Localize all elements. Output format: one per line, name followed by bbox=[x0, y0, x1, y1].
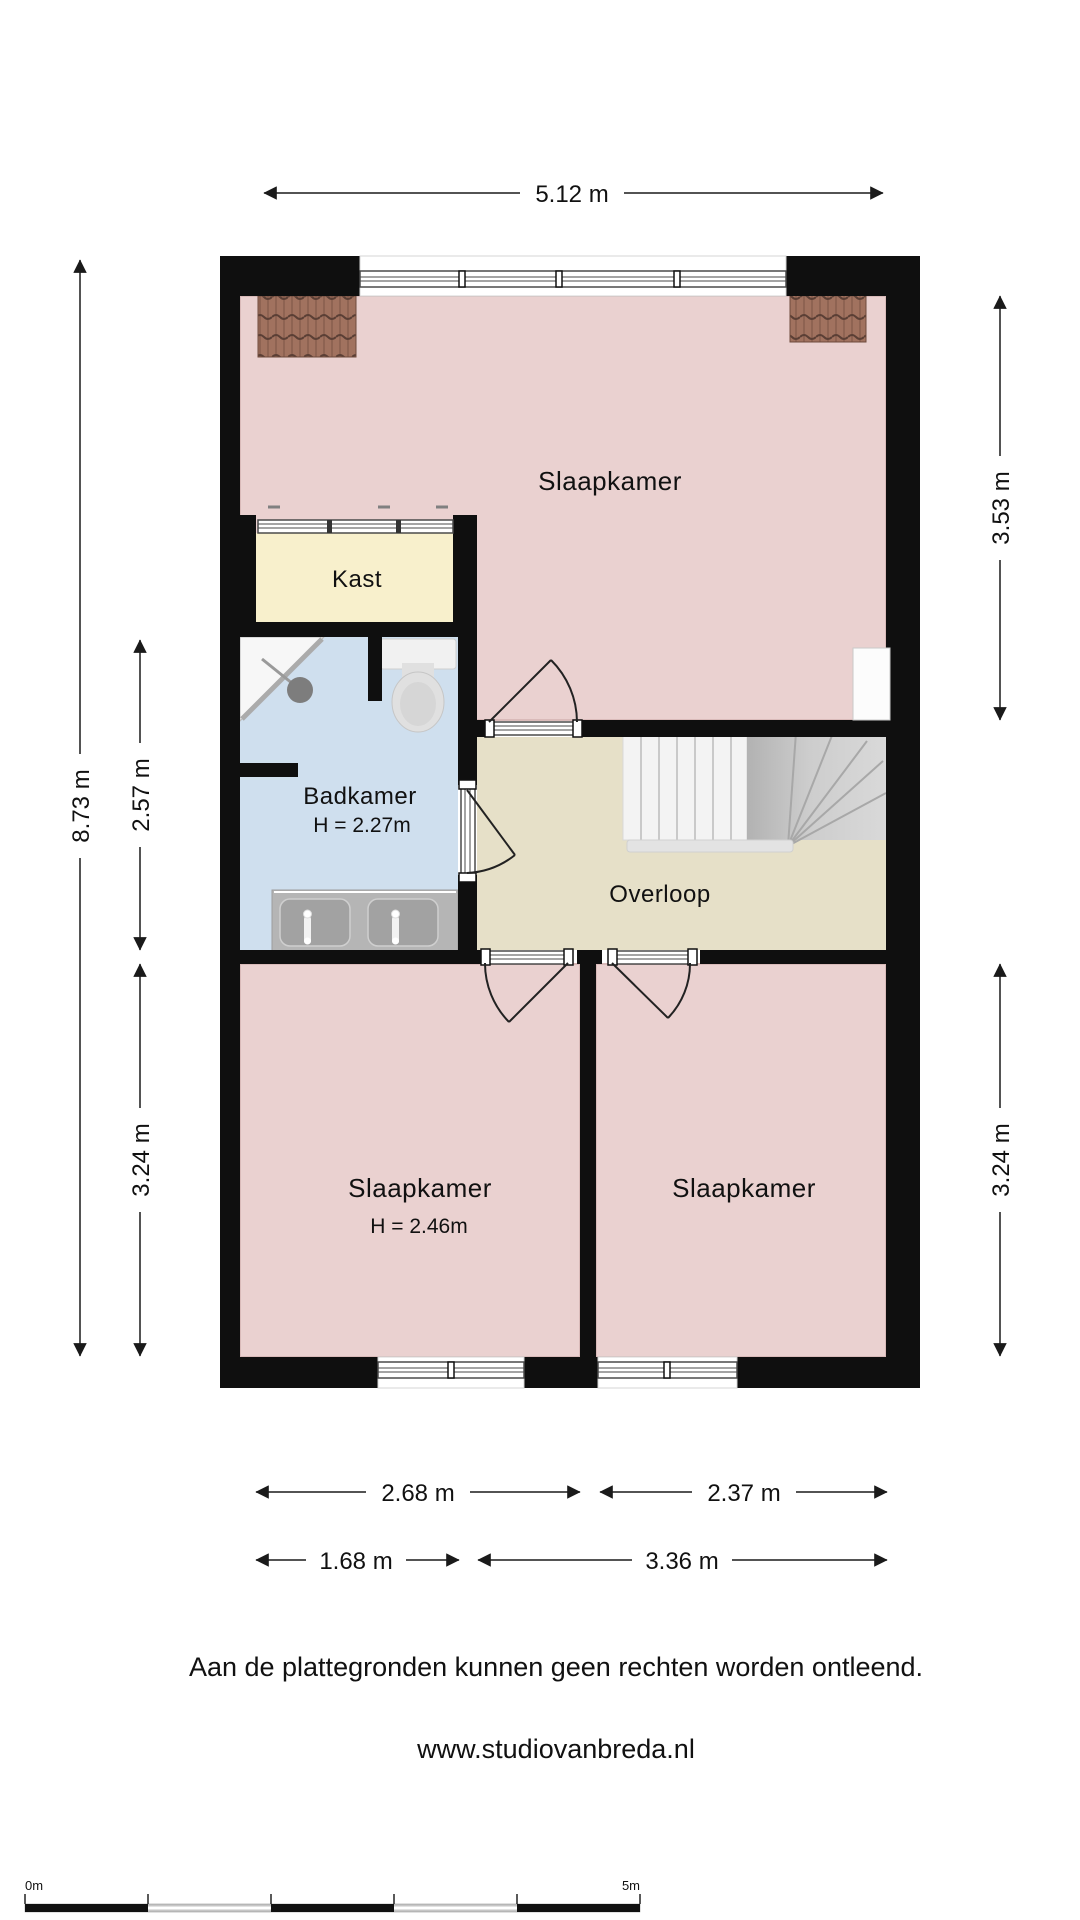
disclaimer-text: Aan de plattegronden kunnen geen rechten… bbox=[189, 1652, 923, 1682]
faucet-left-base bbox=[304, 938, 311, 945]
wall-below-closet bbox=[240, 622, 477, 637]
scale-start-label: 0m bbox=[25, 1878, 43, 1893]
faucet-right-base bbox=[392, 938, 399, 945]
dim-label: 3.53 m bbox=[988, 471, 1015, 544]
window-bottom-left-mullion bbox=[448, 1362, 454, 1378]
wall-bathroom-right-upper bbox=[458, 637, 477, 785]
wall-top-right-corner bbox=[786, 256, 920, 296]
scale-bar-segment-black bbox=[271, 1904, 394, 1912]
wall-left bbox=[220, 256, 240, 1388]
door-bedroom-top-band bbox=[489, 722, 577, 735]
room-bedroom-bottom-right bbox=[596, 964, 886, 1357]
window-top-mullion-1 bbox=[459, 271, 465, 287]
window-top-mullion-3 bbox=[674, 271, 680, 287]
wall-landing-bottom-1 bbox=[240, 950, 485, 964]
wall-bottom-2 bbox=[524, 1357, 598, 1388]
roof-tiles-left bbox=[258, 296, 356, 357]
door-post bbox=[485, 720, 494, 737]
website-text: www.studiovanbreda.nl bbox=[416, 1734, 695, 1764]
stairs bbox=[623, 732, 886, 852]
faucet-left-dot bbox=[304, 910, 312, 918]
window-closet bbox=[258, 520, 453, 533]
dim-label: 5.12 m bbox=[535, 181, 608, 208]
label-closet: Kast bbox=[332, 566, 382, 593]
window-top-mullion-2 bbox=[556, 271, 562, 287]
door-bbl-band bbox=[485, 951, 568, 964]
wall-bottom-1 bbox=[220, 1357, 378, 1388]
faucet-right-dot bbox=[392, 910, 400, 918]
door-post bbox=[481, 949, 490, 965]
wall-landing-top-2 bbox=[577, 720, 886, 737]
label-bedroom-bottom-left-height: H = 2.46m bbox=[370, 1215, 467, 1238]
window-closet-mullion-1 bbox=[327, 520, 332, 533]
sink-vanity bbox=[272, 890, 458, 952]
door-post bbox=[564, 949, 573, 965]
window-bottom-right-mullion bbox=[664, 1362, 670, 1378]
wall-closet-left bbox=[240, 515, 256, 637]
dim-label: 2.68 m bbox=[381, 1480, 454, 1507]
door-bathroom-band bbox=[461, 787, 475, 875]
window-bottom-left bbox=[378, 1357, 524, 1388]
dim-label: 3.36 m bbox=[645, 1548, 718, 1575]
wall-bathroom-right-lower bbox=[458, 875, 477, 950]
scale-bar-segment-black bbox=[25, 1904, 148, 1912]
scale-bar-segment-black bbox=[517, 1904, 640, 1912]
dim-label: 1.68 m bbox=[319, 1548, 392, 1575]
wall-bottom-3 bbox=[737, 1357, 920, 1388]
dim-label: 8.73 m bbox=[68, 769, 95, 842]
toilet-bowl-inner bbox=[400, 682, 436, 726]
label-bathroom-height: H = 2.27m bbox=[313, 814, 410, 837]
sink-basin-right bbox=[368, 899, 438, 946]
wall-bathroom-stub bbox=[240, 763, 298, 777]
wall-toilet-stub bbox=[368, 637, 382, 701]
window-closet-band bbox=[258, 520, 453, 533]
label-bedroom-bottom-right: Slaapkamer bbox=[672, 1173, 816, 1203]
label-bathroom: Badkamer bbox=[303, 783, 416, 810]
duct-notch bbox=[853, 648, 890, 720]
door-post bbox=[459, 780, 476, 789]
door-bbr-band bbox=[612, 951, 692, 964]
label-bedroom-bottom-left: Slaapkamer bbox=[348, 1173, 492, 1203]
scale-end-label: 5m bbox=[622, 1878, 640, 1893]
roof-tiles-right bbox=[790, 290, 866, 342]
stairs-nosing bbox=[627, 840, 793, 852]
door-post bbox=[459, 873, 476, 882]
window-bottom-right bbox=[598, 1357, 737, 1388]
dim-label: 2.57 m bbox=[128, 758, 155, 831]
wall-top-left-corner bbox=[220, 256, 360, 296]
shower-head bbox=[287, 677, 313, 703]
floor-plan: Slaapkamer Kast Badkamer H = 2.27m Overl… bbox=[0, 0, 1080, 1920]
wall-landing-bottom-pier bbox=[577, 950, 602, 964]
label-landing: Overloop bbox=[609, 881, 710, 908]
room-bedroom-bottom-left bbox=[240, 964, 580, 1357]
window-closet-mullion-2 bbox=[396, 520, 401, 533]
door-post bbox=[573, 720, 582, 737]
stairs-winder bbox=[747, 732, 886, 840]
wall-closet-right bbox=[453, 515, 477, 637]
dim-label: 3.24 m bbox=[128, 1123, 155, 1196]
label-bedroom-top: Slaapkamer bbox=[538, 466, 682, 496]
window-top-band bbox=[360, 271, 786, 287]
dim-label: 3.24 m bbox=[988, 1123, 1015, 1196]
wall-right bbox=[886, 256, 920, 1388]
wall-landing-bottom-2 bbox=[700, 950, 886, 964]
sink-basin-left bbox=[280, 899, 350, 946]
wall-bedroom-divider bbox=[580, 964, 596, 1357]
window-top bbox=[360, 256, 786, 296]
dim-label: 2.37 m bbox=[707, 1480, 780, 1507]
door-post bbox=[688, 949, 697, 965]
